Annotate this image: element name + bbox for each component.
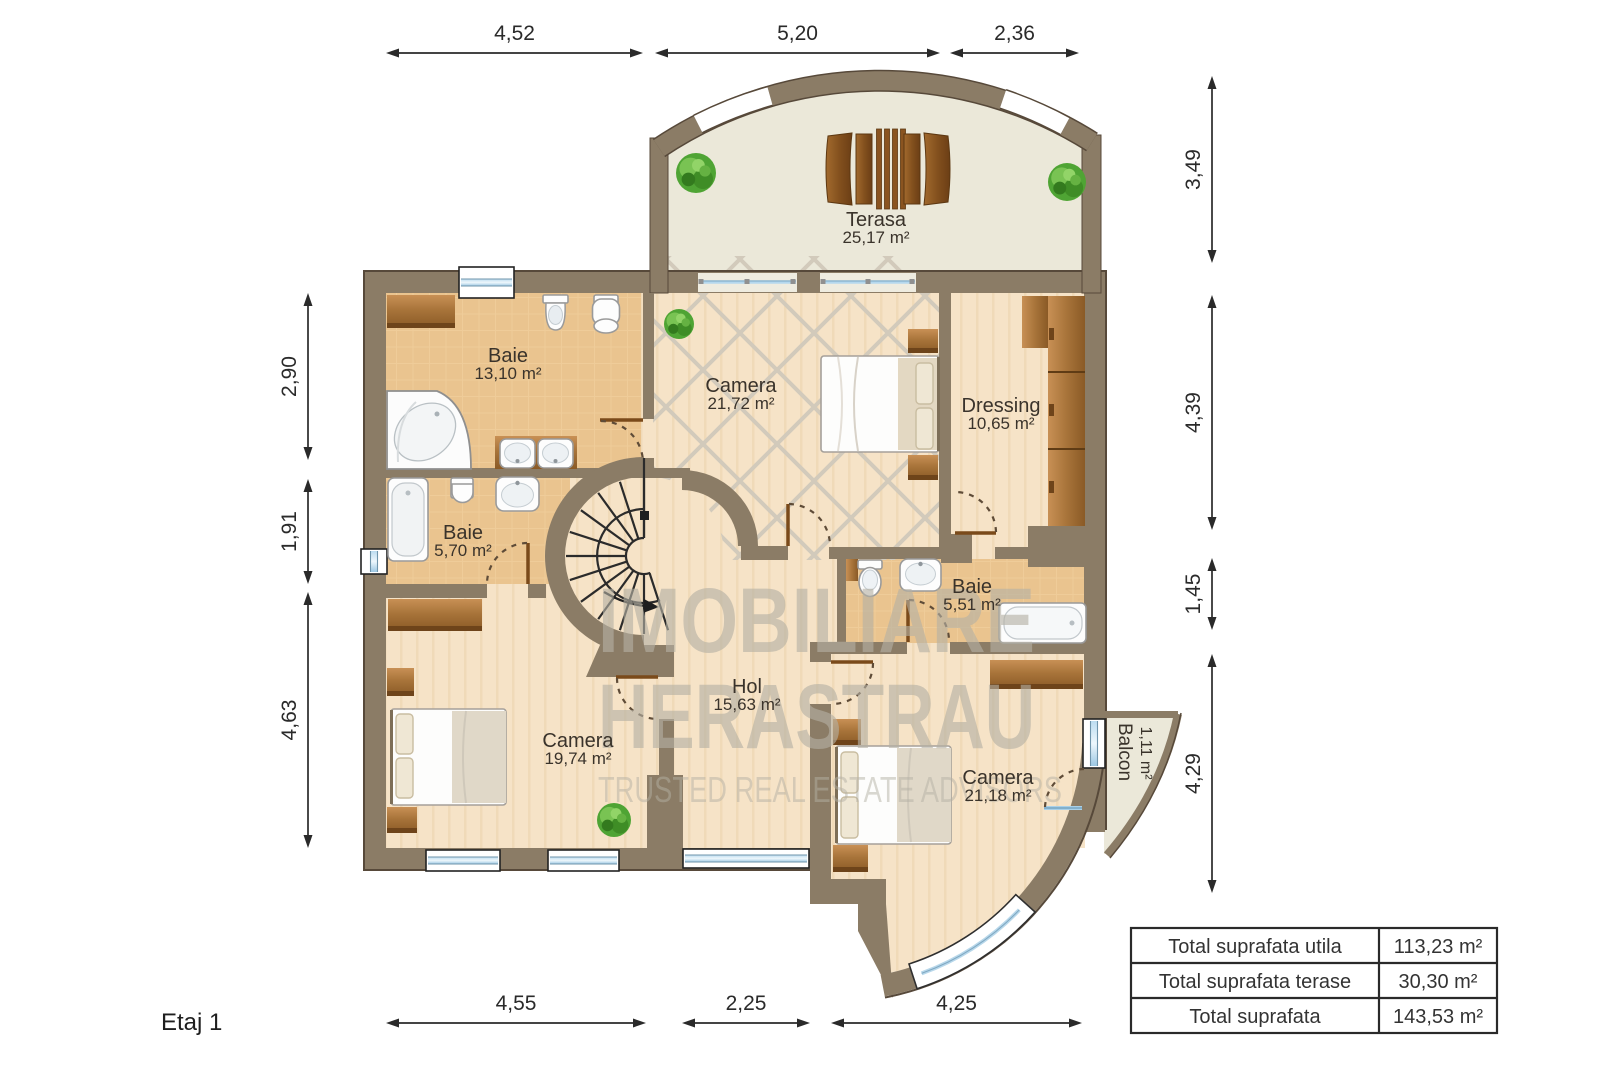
svg-text:4,52: 4,52 (494, 22, 535, 45)
svg-text:1,45: 1,45 (1182, 574, 1205, 615)
svg-text:10,65 m²: 10,65 m² (967, 414, 1034, 433)
svg-text:Total suprafata utila: Total suprafata utila (1168, 936, 1342, 958)
svg-text:5,70 m²: 5,70 m² (434, 541, 492, 560)
svg-text:5,20: 5,20 (777, 22, 818, 45)
svg-text:2,90: 2,90 (278, 356, 301, 397)
svg-text:19,74 m²: 19,74 m² (544, 749, 611, 768)
svg-text:3,49: 3,49 (1182, 149, 1205, 190)
svg-text:1,91: 1,91 (278, 511, 301, 552)
svg-text:Total suprafata terase: Total suprafata terase (1159, 971, 1351, 993)
svg-text:Etaj 1: Etaj 1 (161, 1009, 222, 1036)
svg-text:21,72 m²: 21,72 m² (707, 394, 774, 413)
svg-text:4,29: 4,29 (1182, 753, 1205, 794)
svg-text:143,53 m²: 143,53 m² (1393, 1006, 1483, 1028)
svg-text:21,18 m²: 21,18 m² (964, 786, 1031, 805)
svg-text:Total suprafata: Total suprafata (1189, 1006, 1321, 1028)
svg-text:2,25: 2,25 (726, 992, 767, 1015)
svg-text:4,39: 4,39 (1182, 392, 1205, 433)
svg-text:2,36: 2,36 (994, 22, 1035, 45)
svg-text:15,63 m²: 15,63 m² (713, 695, 780, 714)
svg-text:13,10 m²: 13,10 m² (474, 364, 541, 383)
svg-text:HERASTRAU: HERASTRAU (598, 666, 1035, 768)
svg-text:1,11 m²: 1,11 m² (1137, 726, 1154, 780)
svg-text:5,51 m²: 5,51 m² (943, 595, 1001, 614)
svg-text:25,17 m²: 25,17 m² (842, 228, 909, 247)
svg-text:113,23 m²: 113,23 m² (1394, 936, 1483, 958)
svg-text:4,55: 4,55 (496, 992, 537, 1015)
svg-text:Balcon: Balcon (1114, 723, 1135, 781)
svg-text:30,30 m²: 30,30 m² (1399, 971, 1478, 993)
svg-text:4,25: 4,25 (936, 992, 977, 1015)
svg-text:4,63: 4,63 (278, 700, 301, 741)
